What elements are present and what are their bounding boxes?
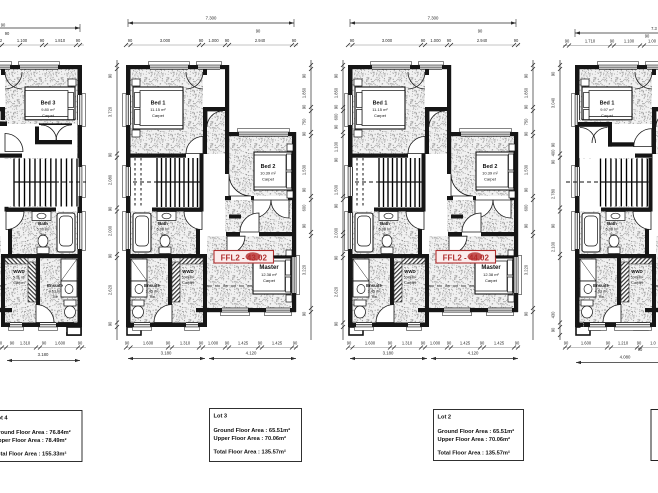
svg-text:Carpet: Carpet (374, 113, 387, 118)
svg-text:3.180: 3.180 (383, 351, 394, 356)
svg-text:Upper Floor Area : 70.06m²: Upper Floor Area : 70.06m² (438, 436, 511, 443)
svg-text:2.940: 2.940 (255, 38, 266, 43)
svg-text:Tile: Tile (609, 233, 615, 237)
svg-text:90: 90 (421, 38, 426, 43)
svg-text:90: 90 (10, 341, 15, 346)
svg-text:3.45 m²: 3.45 m² (368, 290, 382, 294)
svg-text:1.850: 1.850 (302, 87, 307, 98)
svg-text:3.45 m²: 3.45 m² (146, 290, 160, 294)
svg-text:WWD: WWD (631, 269, 642, 274)
svg-text:1.100: 1.100 (624, 39, 635, 44)
svg-text:90: 90 (166, 341, 171, 346)
svg-text:600: 600 (334, 113, 339, 121)
svg-text:Bed 1: Bed 1 (600, 101, 615, 107)
svg-text:1.600: 1.600 (365, 341, 376, 346)
svg-text:90: 90 (480, 341, 485, 346)
svg-text:Bath: Bath (38, 221, 48, 226)
svg-text:90: 90 (638, 347, 643, 352)
svg-text:Carpet: Carpet (262, 177, 275, 182)
svg-text:10.39 m²: 10.39 m² (260, 171, 276, 176)
svg-text:2.000: 2.000 (334, 227, 339, 238)
svg-text:3.220: 3.220 (302, 264, 307, 275)
svg-text:4.63 m²: 4.63 m² (595, 290, 609, 294)
svg-text:2.620: 2.620 (108, 284, 113, 295)
svg-text:Lot 3: Lot 3 (214, 414, 228, 420)
svg-text:Bed 2: Bed 2 (483, 164, 498, 170)
svg-text:1.425: 1.425 (494, 341, 505, 346)
svg-text:Carpet: Carpet (485, 278, 498, 283)
svg-text:90: 90 (447, 341, 452, 346)
svg-text:1.000: 1.000 (430, 341, 441, 346)
svg-text:90: 90 (334, 157, 339, 162)
svg-text:Bed 1: Bed 1 (151, 101, 166, 107)
svg-text:1.600: 1.600 (581, 341, 592, 346)
svg-text:90: 90 (564, 341, 569, 346)
svg-text:430: 430 (551, 311, 556, 319)
svg-text:3.180: 3.180 (161, 351, 172, 356)
svg-text:90: 90 (388, 341, 393, 346)
svg-text:90: 90 (551, 327, 556, 332)
svg-text:Lot 2: Lot 2 (438, 415, 452, 421)
svg-text:1.710: 1.710 (585, 39, 596, 44)
svg-text:FFL2 - 44.02: FFL2 - 44.02 (443, 253, 490, 262)
svg-text:Bed 1: Bed 1 (373, 101, 388, 107)
svg-text:Carpet: Carpet (182, 281, 194, 285)
svg-text:90: 90 (302, 187, 307, 192)
svg-text:90: 90 (76, 38, 81, 43)
svg-text:1.850: 1.850 (334, 87, 339, 98)
svg-text:1.530: 1.530 (524, 164, 529, 175)
svg-text:90: 90 (524, 187, 529, 192)
svg-text:Upper Floor Area : 70.06m²: Upper Floor Area : 70.06m² (214, 435, 287, 442)
svg-text:0: 0 (0, 341, 3, 346)
svg-text:5.49 m²: 5.49 m² (404, 276, 418, 280)
svg-text:2.100: 2.100 (551, 241, 556, 252)
svg-text:5.00 m²: 5.00 m² (157, 228, 171, 232)
svg-text:90: 90 (347, 341, 352, 346)
svg-text:90: 90 (108, 152, 113, 157)
svg-text:1.600: 1.600 (55, 341, 66, 346)
svg-text:2: 2 (0, 38, 3, 43)
svg-text:4.080: 4.080 (620, 355, 631, 360)
svg-text:90: 90 (128, 38, 133, 43)
svg-text:90: 90 (1, 23, 6, 28)
svg-text:Carpet: Carpet (42, 113, 55, 118)
svg-text:90: 90 (5, 31, 10, 36)
svg-text:90: 90 (199, 341, 204, 346)
svg-text:Carpet: Carpet (13, 281, 25, 285)
svg-text:90: 90 (334, 255, 339, 260)
svg-text:7.300: 7.300 (206, 16, 217, 21)
svg-text:7.300: 7.300 (428, 16, 439, 21)
svg-text:90: 90 (334, 124, 339, 129)
svg-text:3.000: 3.000 (382, 38, 393, 43)
svg-text:Tile: Tile (382, 233, 388, 237)
svg-text:Ensuite: Ensuite (593, 283, 609, 288)
svg-text:12.38 m²: 12.38 m² (261, 272, 277, 277)
svg-text:90: 90 (350, 38, 355, 43)
svg-text:750: 750 (524, 118, 529, 126)
svg-text:90: 90 (108, 321, 113, 326)
svg-text:90: 90 (421, 341, 426, 346)
svg-text:4.120: 4.120 (246, 351, 257, 356)
svg-text:Carpet: Carpet (601, 113, 614, 118)
svg-text:1.00: 1.00 (648, 39, 657, 44)
svg-text:Bath: Bath (380, 221, 390, 226)
svg-text:1.310: 1.310 (180, 341, 191, 346)
svg-text:Tile: Tile (598, 295, 604, 299)
svg-text:90: 90 (78, 341, 83, 346)
svg-text:90: 90 (334, 203, 339, 208)
svg-text:90: 90 (565, 39, 570, 44)
svg-text:Carpet: Carpet (404, 281, 416, 285)
svg-text:Ensuite: Ensuite (144, 283, 160, 288)
svg-text:9.97 m²: 9.97 m² (600, 107, 614, 112)
svg-text:90: 90 (292, 38, 297, 43)
svg-text:WWD: WWD (182, 269, 193, 274)
svg-text:90: 90 (125, 341, 130, 346)
svg-text:1.000: 1.000 (430, 38, 441, 43)
svg-text:90: 90 (515, 341, 520, 346)
svg-text:90: 90 (606, 341, 611, 346)
svg-text:4.63 m²: 4.63 m² (49, 290, 63, 294)
svg-text:90: 90 (302, 131, 307, 136)
svg-text:Master: Master (481, 265, 501, 271)
svg-text:1.425: 1.425 (238, 341, 249, 346)
svg-text:90: 90 (524, 311, 529, 316)
svg-text:1.425: 1.425 (460, 341, 471, 346)
svg-text:1.500: 1.500 (334, 184, 339, 195)
svg-text:90: 90 (551, 159, 556, 164)
svg-text:Tile: Tile (40, 233, 46, 237)
svg-text:Bath: Bath (607, 221, 617, 226)
svg-text:2.620: 2.620 (334, 286, 339, 297)
svg-text:Bed 2: Bed 2 (261, 164, 276, 170)
svg-text:90: 90 (256, 29, 261, 34)
svg-text:2.080: 2.080 (108, 174, 113, 185)
svg-text:3.180: 3.180 (38, 352, 49, 357)
svg-text:Carpet: Carpet (152, 113, 165, 118)
svg-text:Upper Floor Area : 78.49m²: Upper Floor Area : 78.49m² (0, 437, 67, 444)
svg-text:2.940: 2.940 (477, 38, 488, 43)
svg-text:90: 90 (225, 341, 230, 346)
svg-text:Ground Floor Area : 76.84m²: Ground Floor Area : 76.84m² (0, 429, 71, 436)
svg-text:90: 90 (334, 73, 339, 78)
svg-text:Tile: Tile (371, 295, 377, 299)
svg-text:90: 90 (447, 38, 452, 43)
svg-text:Total Floor Area : 135.57m²: Total Floor Area : 135.57m² (214, 449, 286, 456)
svg-text:5.49 m²: 5.49 m² (631, 276, 645, 280)
svg-text:3.040: 3.040 (551, 97, 556, 108)
svg-text:10.39 m²: 10.39 m² (482, 171, 498, 176)
svg-text:7.3: 7.3 (651, 26, 657, 31)
svg-text:Carpet: Carpet (631, 281, 643, 285)
svg-text:90: 90 (637, 341, 642, 346)
svg-text:3.220: 3.220 (524, 264, 529, 275)
svg-text:90: 90 (478, 29, 483, 34)
svg-text:1.210: 1.210 (618, 341, 629, 346)
svg-text:90: 90 (42, 341, 47, 346)
svg-text:FFL2 - 43.02: FFL2 - 43.02 (221, 253, 268, 262)
svg-text:Total Floor Area : 135.57m²: Total Floor Area : 135.57m² (438, 450, 510, 457)
svg-text:11.15 m²: 11.15 m² (372, 107, 388, 112)
svg-text:Total Floor Area : 155.33m²: Total Floor Area : 155.33m² (0, 451, 66, 458)
svg-text:Tile: Tile (160, 233, 166, 237)
svg-text:2.780: 2.780 (551, 188, 556, 199)
svg-text:Master: Master (259, 265, 279, 271)
svg-text:Ground Floor Area : 65.51m²: Ground Floor Area : 65.51m² (438, 428, 515, 435)
svg-text:600: 600 (524, 204, 529, 212)
svg-text:90: 90 (524, 73, 529, 78)
svg-text:90: 90 (108, 253, 113, 258)
svg-text:90: 90 (302, 104, 307, 109)
svg-text:90: 90 (551, 71, 556, 76)
svg-text:Ground Floor Area : 65.51m²: Ground Floor Area : 65.51m² (214, 427, 291, 434)
svg-text:Carpet: Carpet (484, 177, 497, 182)
svg-text:90: 90 (524, 223, 529, 228)
svg-text:3.000: 3.000 (160, 38, 171, 43)
svg-text:90: 90 (514, 38, 519, 43)
svg-text:1.850: 1.850 (524, 87, 529, 98)
svg-text:1.310: 1.310 (20, 341, 31, 346)
svg-text:400: 400 (551, 149, 556, 157)
svg-text:2.000: 2.000 (108, 225, 113, 236)
svg-text:WWD: WWD (404, 269, 415, 274)
svg-text:90: 90 (524, 104, 529, 109)
svg-text:600: 600 (302, 204, 307, 212)
svg-text:1.000: 1.000 (208, 341, 219, 346)
svg-text:90: 90 (524, 131, 529, 136)
svg-text:5.11 m²: 5.11 m² (13, 276, 26, 280)
svg-text:5.00 m²: 5.00 m² (37, 228, 51, 232)
svg-text:5.00 m²: 5.00 m² (606, 228, 620, 232)
svg-text:90: 90 (108, 73, 113, 78)
svg-text:11.15 m²: 11.15 m² (150, 107, 166, 112)
svg-text:90: 90 (199, 38, 204, 43)
svg-text:750: 750 (302, 118, 307, 126)
svg-text:90: 90 (302, 73, 307, 78)
svg-text:90: 90 (108, 206, 113, 211)
svg-text:1.600: 1.600 (143, 341, 154, 346)
svg-text:Ensuite: Ensuite (366, 283, 382, 288)
svg-text:90: 90 (302, 311, 307, 316)
svg-text:WWD: WWD (13, 269, 24, 274)
svg-text:1.100: 1.100 (334, 141, 339, 152)
svg-text:90: 90 (302, 223, 307, 228)
svg-text:1.425: 1.425 (272, 341, 283, 346)
svg-text:90: 90 (293, 341, 298, 346)
svg-text:90: 90 (551, 142, 556, 147)
svg-text:5.00 m²: 5.00 m² (379, 228, 393, 232)
svg-text:Tile: Tile (52, 295, 58, 299)
svg-text:90: 90 (551, 223, 556, 228)
svg-text:Ensuite: Ensuite (47, 283, 63, 288)
svg-text:Carpet: Carpet (263, 278, 276, 283)
svg-text:1.000: 1.000 (208, 38, 219, 43)
svg-text:90: 90 (334, 104, 339, 109)
svg-text:90: 90 (225, 38, 230, 43)
svg-text:90: 90 (40, 38, 45, 43)
svg-text:4.120: 4.120 (468, 351, 479, 356)
svg-text:1.810: 1.810 (55, 38, 66, 43)
svg-text:90: 90 (334, 321, 339, 326)
svg-text:Bath: Bath (158, 221, 168, 226)
svg-text:Bed 3: Bed 3 (41, 101, 56, 107)
svg-text:1.530: 1.530 (302, 164, 307, 175)
svg-text:12.38 m²: 12.38 m² (483, 272, 499, 277)
svg-text:1.310: 1.310 (402, 341, 413, 346)
svg-text:90: 90 (610, 39, 615, 44)
svg-text:1.0: 1.0 (650, 341, 656, 346)
svg-text:9.80 m²: 9.80 m² (41, 107, 55, 112)
svg-text:1.100: 1.100 (17, 38, 28, 43)
svg-text:5.49 m²: 5.49 m² (182, 276, 196, 280)
svg-text:Lot 4: Lot 4 (0, 416, 8, 422)
svg-text:Tile: Tile (149, 295, 155, 299)
svg-text:90: 90 (258, 341, 263, 346)
svg-text:3.720: 3.720 (108, 106, 113, 117)
